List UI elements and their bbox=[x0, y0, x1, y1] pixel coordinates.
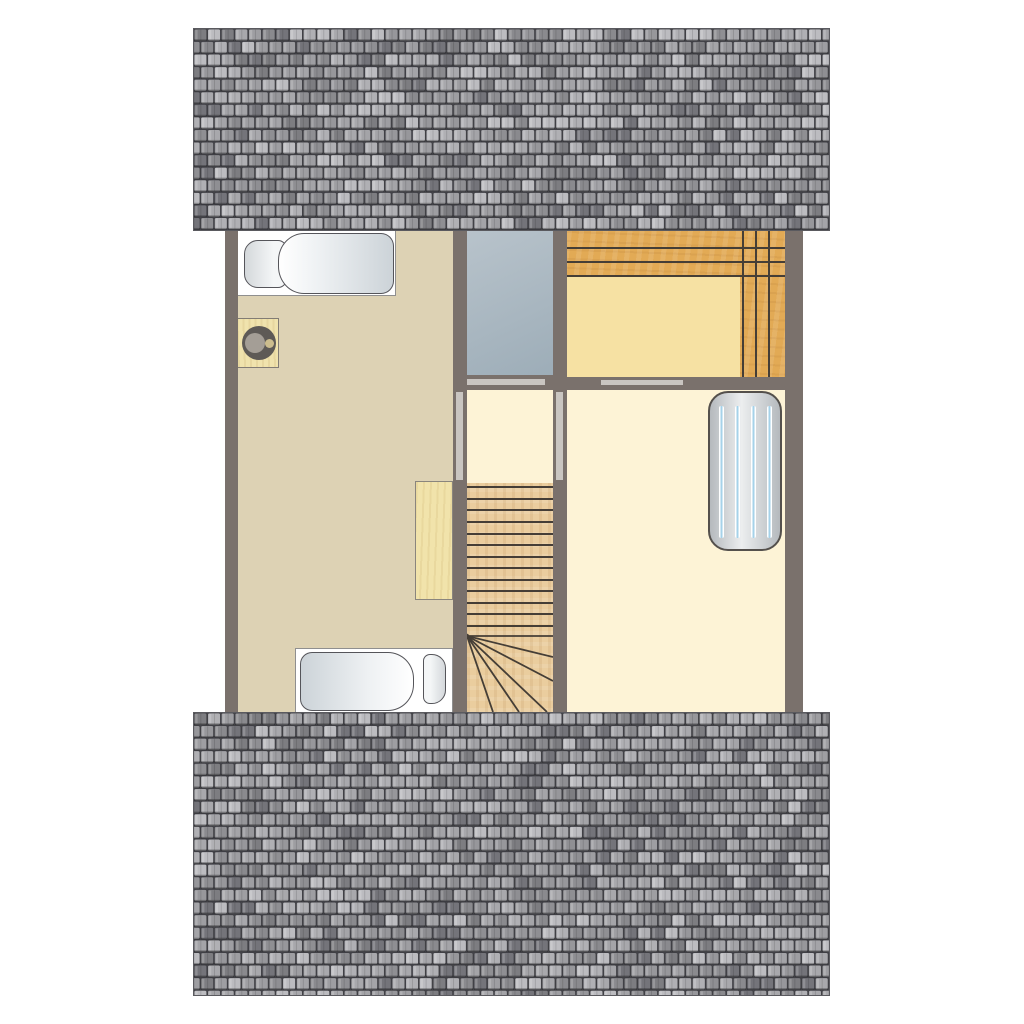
door-threshold-void bbox=[467, 379, 545, 385]
radiator-stripe bbox=[735, 406, 740, 538]
closet-shelf-line bbox=[567, 275, 785, 277]
stair-tread-line bbox=[467, 498, 553, 500]
door-threshold-storage bbox=[601, 380, 683, 385]
stool-icon bbox=[242, 326, 276, 360]
floorplan-canvas bbox=[0, 0, 1024, 1024]
stair-railing-right bbox=[556, 392, 563, 480]
roof-tiles-bottom bbox=[193, 712, 830, 996]
stair-tread-line bbox=[467, 602, 553, 604]
bedroom-left-floor bbox=[238, 231, 453, 712]
stool-ring bbox=[245, 333, 265, 353]
stair-tread-line bbox=[467, 579, 553, 581]
radiator bbox=[708, 391, 782, 551]
stair-tread-line bbox=[467, 521, 553, 523]
stair-tread-line bbox=[467, 544, 553, 546]
closet-divider-line bbox=[742, 231, 744, 377]
stair-tread-line bbox=[467, 625, 553, 627]
stair-tread-line bbox=[467, 556, 553, 558]
wall-left bbox=[225, 231, 238, 712]
roof-tile-pattern-bottom bbox=[194, 713, 829, 995]
single-bed-bottom bbox=[295, 648, 453, 712]
duvet bbox=[278, 233, 394, 294]
stair-tread-line bbox=[467, 533, 553, 535]
stool-center bbox=[265, 339, 274, 348]
void-opening bbox=[467, 231, 553, 375]
closet-divider-line bbox=[768, 231, 770, 377]
radiator-stripe bbox=[751, 406, 756, 538]
stair-tread-line bbox=[467, 486, 553, 488]
closet-divider-line bbox=[755, 231, 757, 377]
staircase bbox=[467, 483, 553, 712]
stair-tread-line bbox=[467, 590, 553, 592]
radiator-stripe bbox=[719, 406, 724, 538]
radiator-stripe bbox=[767, 406, 772, 538]
wall-right bbox=[785, 231, 803, 712]
closet-shelf-line bbox=[567, 261, 785, 263]
closet-inset-panel bbox=[567, 277, 740, 377]
stair-tread-line bbox=[467, 613, 553, 615]
winder-steps bbox=[467, 483, 553, 712]
stair-tread-line bbox=[467, 567, 553, 569]
closet-shelf-line bbox=[567, 247, 785, 249]
stair-railing-left bbox=[456, 392, 463, 480]
duvet bbox=[300, 652, 414, 711]
roof-tile-pattern-top bbox=[194, 29, 829, 230]
single-bed-top bbox=[238, 231, 396, 296]
stair-tread-line bbox=[467, 509, 553, 511]
storage-room-floor bbox=[567, 231, 785, 377]
landing-floor bbox=[467, 390, 553, 483]
roof-tiles-top bbox=[193, 28, 830, 231]
side-table bbox=[238, 318, 279, 368]
pillow bbox=[423, 654, 446, 704]
desk bbox=[415, 481, 453, 600]
